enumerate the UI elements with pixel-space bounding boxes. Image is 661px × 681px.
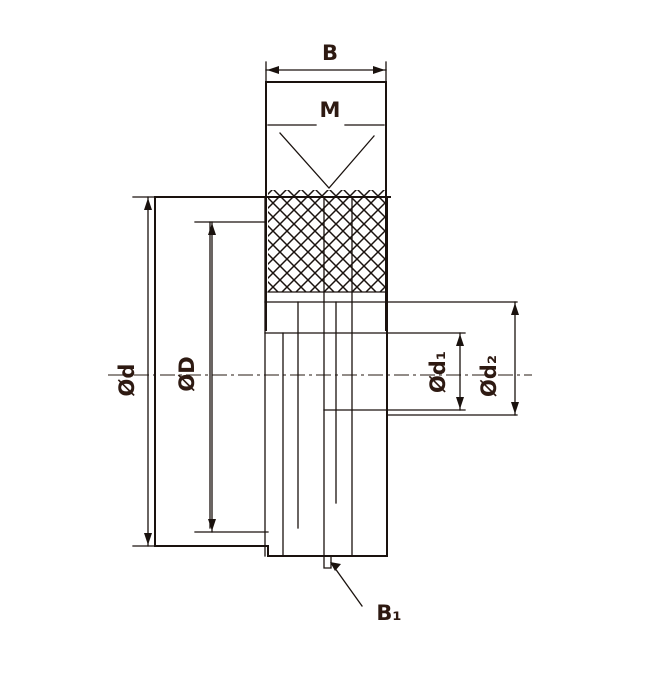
technical-drawing: B M Ød ØD Ød₁ Ød₂ [0, 0, 661, 681]
bottom-leader [330, 562, 362, 606]
dim-label-right-inner: Ød₁ [426, 351, 450, 393]
dim-label-left-outer: Ød [115, 364, 139, 397]
knurl-hatch-section [268, 190, 386, 292]
dimension-top-width [266, 62, 386, 82]
dimension-right-inner [456, 333, 464, 410]
cone-detail [280, 133, 374, 188]
dim-label-bottom: B₁ [376, 601, 401, 625]
technical-drawing-canvas: B M Ød ØD Ød₁ Ød₂ [0, 0, 661, 681]
dimension-right-outer [511, 302, 519, 415]
dim-label-top-width: B [322, 41, 338, 65]
dimension-left-inner [208, 222, 216, 532]
dim-label-left-inner: ØD [175, 356, 199, 391]
thread-label: M [320, 98, 341, 122]
dim-label-right-outer: Ød₂ [477, 355, 501, 397]
